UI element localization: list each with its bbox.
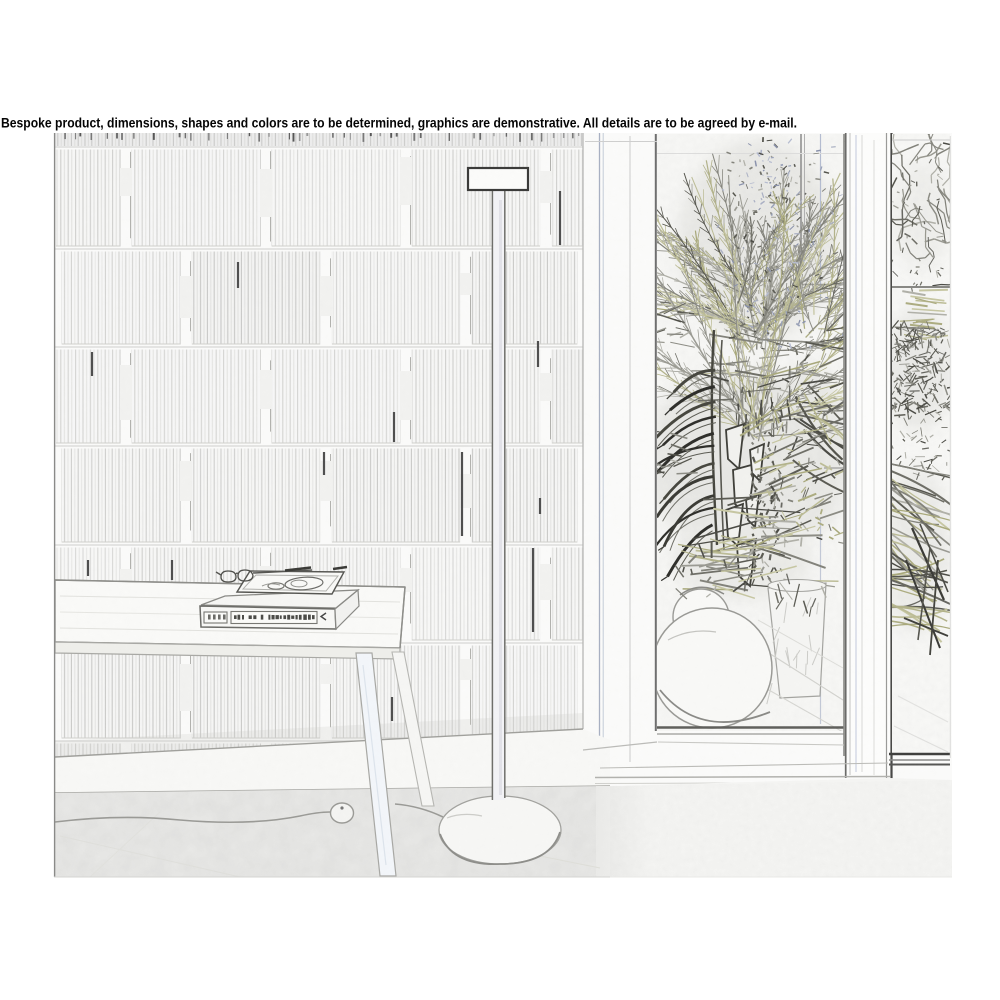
svg-text:Bespoke product, dimensions, s: Bespoke product, dimensions, shapes and …	[1, 116, 797, 131]
